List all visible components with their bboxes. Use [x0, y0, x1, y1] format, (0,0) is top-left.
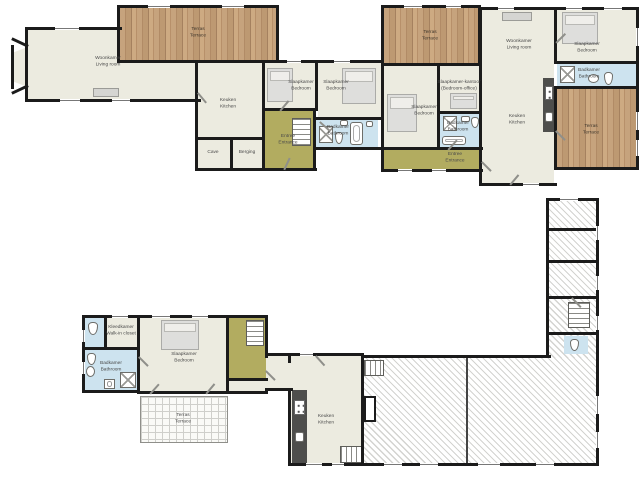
wall	[82, 315, 85, 393]
wall	[25, 27, 28, 102]
window	[560, 198, 578, 201]
room-label-terrace-top-left: TerrasTerrace	[190, 27, 206, 39]
window	[152, 315, 170, 318]
wall	[554, 86, 557, 170]
window	[148, 5, 170, 8]
room-label-bedroom-3: SlaapkamerBedroom	[411, 105, 437, 117]
window	[566, 7, 582, 10]
sideboard-icon	[93, 88, 119, 97]
room-label-terrace-tiled: TerrasTerrace	[175, 413, 191, 425]
wall	[288, 388, 291, 466]
room-label-bathroom-4: BadkamerBathroom	[100, 361, 122, 373]
floor-plan-canvas: TerrasTerrace WoonkamerLiving room Keuke…	[0, 0, 640, 480]
window	[604, 7, 622, 10]
window	[306, 463, 322, 466]
room-label-storage: Berging	[239, 150, 256, 156]
sink-icon	[295, 432, 304, 442]
wall	[313, 147, 381, 150]
window	[55, 27, 79, 30]
window	[384, 463, 402, 466]
window	[420, 463, 438, 466]
wall	[195, 168, 265, 171]
stove-icon	[294, 400, 305, 415]
wall	[361, 353, 364, 466]
room-label-kitchen-main: KeukenKitchen	[318, 414, 334, 426]
wall	[82, 347, 140, 350]
room-label-bedroom-1: SlaapkamerBedroom	[288, 80, 314, 92]
wall	[11, 45, 14, 89]
window	[596, 276, 599, 290]
window	[82, 330, 85, 342]
wall	[117, 60, 279, 63]
wall	[440, 111, 480, 114]
room-label-terrace-top-mid: TerrasTerrace	[422, 30, 438, 42]
window	[536, 463, 554, 466]
wall	[479, 7, 482, 186]
wall	[554, 167, 639, 170]
room-label-kitchen-right: KeukenKitchen	[509, 114, 525, 126]
wall	[549, 260, 596, 263]
washing-machine-icon	[104, 379, 115, 389]
wall	[195, 60, 198, 170]
wall	[556, 61, 636, 64]
stairs-icon	[364, 360, 384, 376]
bathtub-icon	[350, 122, 363, 145]
wall	[117, 5, 120, 63]
room-entrance-right	[384, 150, 480, 169]
window	[498, 7, 514, 10]
window	[432, 169, 446, 172]
window	[523, 183, 539, 186]
wall	[226, 378, 268, 381]
wall	[381, 5, 481, 8]
window	[446, 5, 461, 8]
window	[596, 396, 599, 414]
wall	[276, 5, 279, 63]
window	[478, 463, 500, 466]
window	[596, 432, 599, 448]
wall	[556, 86, 636, 89]
window	[82, 362, 85, 374]
window	[60, 99, 80, 102]
wall	[82, 315, 268, 318]
sideboard-icon	[502, 12, 532, 21]
window	[334, 60, 350, 63]
window	[112, 315, 128, 318]
wall	[381, 147, 483, 150]
wall	[262, 60, 265, 171]
sink-icon	[86, 366, 95, 377]
room-label-kitchen-left: KeukenKitchen	[220, 98, 236, 110]
wall	[230, 140, 233, 168]
room-label-bathroom-3: BadkamerBathroom	[578, 68, 600, 80]
window	[398, 169, 412, 172]
room-label-bathroom-1: BadkamerBathroom	[327, 125, 349, 137]
shower-icon	[560, 66, 575, 83]
wall	[117, 5, 279, 8]
window	[287, 60, 301, 63]
room-label-bedroom-4: SlaapkamerBedroom	[574, 42, 600, 54]
room-label-walk-in-closet: KleedkamerWalk-in closet	[106, 325, 136, 337]
window	[636, 140, 639, 156]
room-label-bathroom-2: BadkamerBathroom	[447, 121, 469, 133]
wall	[262, 168, 317, 171]
wall	[549, 228, 596, 231]
room-label-bedroom-5: SlaapkamerBedroom	[171, 352, 197, 364]
stairs-icon	[340, 446, 362, 463]
room-label-entrance-right: EntreeEntrance	[445, 152, 464, 164]
room-label-living-right: WoonkamerLiving room	[506, 39, 532, 51]
window	[112, 99, 130, 102]
stairs-icon	[246, 320, 264, 346]
window	[636, 112, 639, 130]
window	[596, 316, 599, 330]
window	[192, 315, 208, 318]
wall	[479, 183, 557, 186]
sink-icon	[545, 112, 553, 122]
wall	[137, 315, 140, 394]
sink-icon	[366, 121, 373, 127]
room-label-terrace-right: TerrasTerrace	[583, 124, 599, 136]
wall	[265, 315, 268, 358]
window	[596, 226, 599, 240]
wall	[549, 332, 596, 335]
wall	[466, 358, 468, 463]
window	[300, 353, 313, 356]
window	[636, 28, 639, 46]
bed-icon	[161, 320, 199, 350]
room-label-entrance-left: EntreeEntrance	[278, 134, 297, 146]
wall	[226, 315, 229, 394]
room-label-bedroom-2: SlaapkamerBedroom	[323, 80, 349, 92]
chimney	[364, 396, 376, 422]
wall	[381, 63, 481, 66]
wall	[315, 63, 318, 111]
wall	[437, 63, 440, 147]
room-label-cellar: Cave	[207, 150, 218, 156]
room-living-left-ext	[120, 63, 198, 100]
wall	[262, 108, 318, 111]
room-label-living-left: WoonkamerLiving room	[95, 56, 121, 68]
stove-icon	[545, 86, 553, 100]
wall	[288, 463, 364, 466]
bed-icon	[450, 93, 477, 109]
window	[222, 5, 244, 8]
window	[404, 5, 422, 8]
window	[332, 463, 344, 466]
bed-icon	[562, 12, 598, 44]
wall	[82, 390, 140, 393]
shower-icon	[120, 372, 136, 388]
wall	[554, 7, 557, 64]
wall	[288, 353, 291, 363]
wall	[381, 5, 384, 66]
wall	[361, 355, 551, 358]
wall	[381, 63, 384, 172]
room-label-bedroom-office: Slaapkamer-kantoor(Bedroom-office)	[437, 80, 480, 92]
room-barn	[362, 358, 596, 464]
wall	[138, 391, 268, 394]
